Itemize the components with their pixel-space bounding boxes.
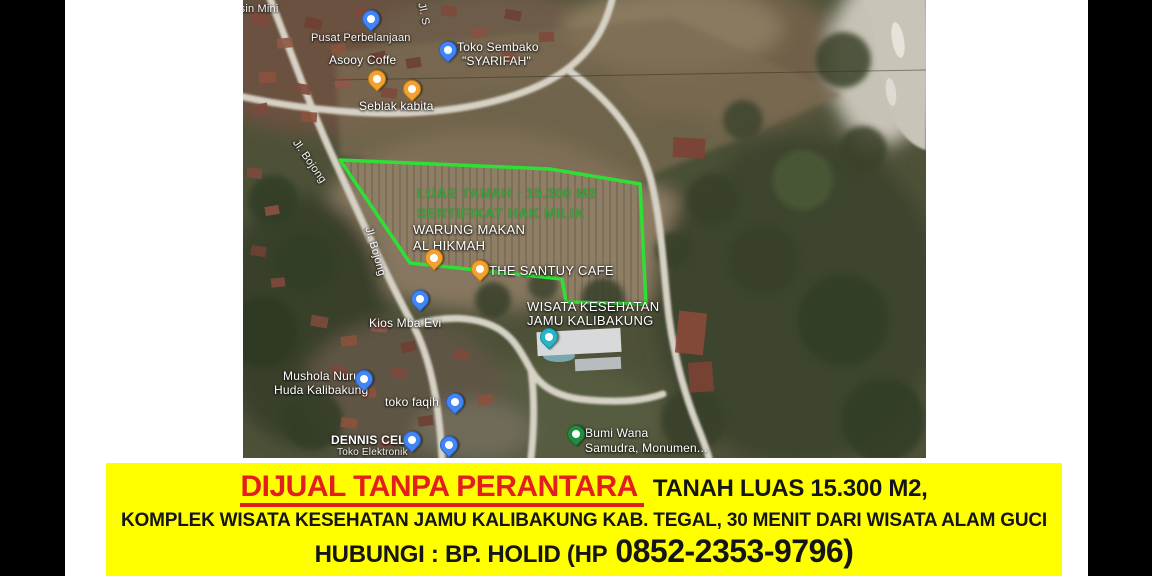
sertifikat-annotation: SERTIFIKAT HAK MILIK [417,206,585,220]
right-black-bar [1088,0,1152,576]
map-label-samudra-monumen: Samudra, Monumen... [585,442,708,454]
luas-tanah-annotation: LUAS TANAH : 15.300 M2 [417,186,597,200]
map-label-pusat-perbelanjaan: Pusat Perbelanjaan [311,33,411,44]
map-label-jamu-kalibakung: JAMU KALIBAKUNG [527,314,654,327]
map-label-bumi-wana: Bumi Wana [585,427,648,439]
map-label-toko-sembako: Toko Sembako [457,41,539,53]
map-label-kios-mba-evi: Kios Mba Evi [369,317,441,329]
ad-banner: DIJUAL TANPA PERANTARA TANAH LUAS 15.300… [106,463,1062,576]
map-label-ensin-mini: ensin Mini [243,4,279,15]
map-label-huda-kalibakung: Huda Kalibakung [274,384,368,396]
satellite-map: LUAS TANAH : 15.300 M2 SERTIFIKAT HAK MI… [243,0,926,458]
map-label-seblak-kabita: Seblak kabita [359,100,434,112]
map-label-the-santuy-cafe: THE SANTUY CAFE [489,264,614,277]
contact-hubungi: HUBUNGI : BP. HOLID (HP [315,542,608,567]
map-label-asooy-coffe: Asooy Coffe [329,54,396,66]
map-label-toko-faqih: toko faqih [385,396,439,408]
map-label-wisata-kesehatan: WISATA KESEHATAN [527,300,659,313]
banner-location-line: KOMPLEK WISATA KESEHATAN JAMU KALIBAKUNG… [121,510,1047,532]
headline-tanah-luas: TANAH LUAS 15.300 M2, [653,476,928,501]
map-label-toko-elektronik: Toko Elektronik [337,448,408,458]
banner-contact-row: HUBUNGI : BP. HOLID (HP 0852-2353-9796) [315,535,854,569]
map-label-warung-makan: WARUNG MAKAN [413,223,525,236]
map-label-al-hikmah: AL HIKMAH [413,239,485,252]
contact-phone-number: 0852-2353-9796) [615,535,853,569]
map-label-mushola-nurul: Mushola Nurul [283,370,363,382]
headline-dijual: DIJUAL TANPA PERANTARA [240,471,643,508]
flyer-canvas: LUAS TANAH : 15.300 M2 SERTIFIKAT HAK MI… [0,0,1152,576]
map-label-dennis-cell: DENNIS CELL [331,434,413,446]
left-black-bar [0,0,65,576]
map-label-syarifah: "SYARIFAH" [462,55,531,67]
banner-headline-row: DIJUAL TANPA PERANTARA TANAH LUAS 15.300… [240,471,927,508]
